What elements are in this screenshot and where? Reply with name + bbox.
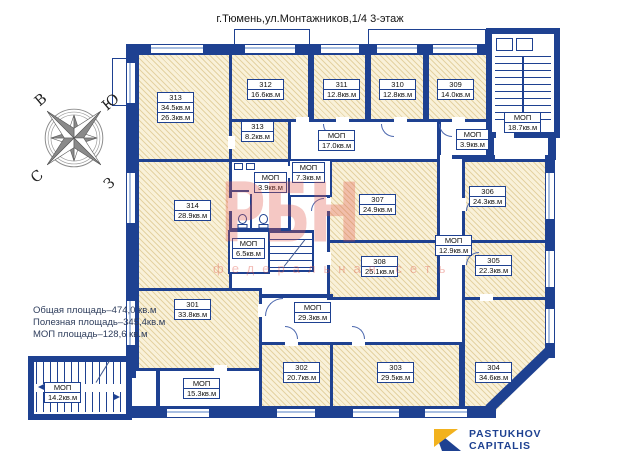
window (545, 250, 555, 288)
company-logo: PASTUKHOV CAPITALIS (432, 428, 541, 452)
stairs-treads (36, 362, 122, 384)
mop-label-3-9-vestibule: МОП3.9кв.м (456, 129, 489, 150)
room-label-307: 30724.9кв.м (359, 194, 396, 215)
window (244, 44, 296, 54)
window (432, 44, 478, 54)
sink (246, 163, 255, 170)
window (352, 408, 400, 418)
stairs-center (268, 230, 314, 272)
door-gap (336, 117, 349, 124)
door-gap (228, 136, 235, 149)
room-label-310: 31012.8кв.м (379, 79, 416, 100)
wc-stall-divider (250, 194, 252, 230)
compass-east-label: В (32, 91, 50, 110)
floor-plan: г.Тюмень,ул.Монтажников,1/4 3-этаж (0, 0, 619, 465)
mop-label-14-2: МОП14.2кв.м (44, 382, 81, 403)
mop-area-line: МОП площадь–128,6 кв.м (33, 329, 165, 341)
door-gap (285, 339, 298, 346)
room-label-312: 31216.6кв.м (247, 79, 284, 100)
mop-label-3-9-wc: МОП3.9кв.м (254, 172, 287, 193)
terrace-outline (368, 29, 486, 45)
door-gap (296, 117, 309, 124)
toilet-icon (237, 214, 248, 234)
window (166, 408, 210, 418)
door-gap (228, 198, 235, 211)
mop-label-18-7: МОП18.7кв.м (504, 112, 541, 133)
window (126, 62, 136, 104)
window (424, 408, 468, 418)
room-label-313: 31334.5кв.м26.3кв.м (157, 92, 194, 123)
mop-label-17-0: МОП17.0кв.м (318, 130, 355, 151)
door-gap (459, 198, 466, 211)
room-label-304: 30434.6кв.м (475, 362, 512, 383)
room-label-313a: 3138.2кв.м (241, 121, 274, 142)
door-gap (452, 117, 465, 124)
useful-area-line: Полезная площадь–345,4кв.м (33, 317, 165, 329)
stairs-arrow-right (114, 394, 120, 400)
door-gap (258, 304, 265, 317)
wall-corridor-north (259, 294, 333, 298)
room-label-303: 30329.5кв.м (377, 362, 414, 383)
door-arc (265, 298, 283, 316)
door-gap (394, 117, 407, 124)
total-area-line: Общая площадь–474,0 кв.м (33, 305, 165, 317)
logo-line1: PASTUKHOV (469, 428, 541, 440)
compass-north-label: С (28, 167, 47, 186)
page-title: г.Тюмень,ул.Монтажников,1/4 3-этаж (140, 13, 480, 25)
window (320, 44, 360, 54)
door-gap (480, 294, 493, 301)
door-gap (324, 252, 331, 265)
window (545, 172, 555, 220)
elevator-shaft (496, 38, 513, 51)
mop-label-6-5: МОП6.5кв.м (232, 238, 265, 259)
door-gap (324, 198, 331, 211)
room-label-302: 30220.7кв.м (283, 362, 320, 383)
compass-west-label: З (101, 175, 118, 192)
logo-icon (432, 428, 462, 452)
toilet-icon (258, 214, 269, 234)
room-314 (136, 159, 232, 291)
window (126, 172, 136, 224)
window (276, 408, 316, 418)
terrace-outline (234, 29, 310, 45)
room-label-314: 31428.9кв.м (174, 200, 211, 221)
door-arc (352, 326, 365, 339)
room-label-309: 30914.0кв.м (437, 79, 474, 100)
mop-label-15-3: МОП15.3кв.м (183, 378, 220, 399)
wc-partition (231, 190, 249, 192)
room-label-306: 30624.3кв.м (469, 186, 506, 207)
compass-rose: В Ю С З (26, 84, 122, 192)
wall-mop15-west (156, 371, 160, 408)
window (545, 308, 555, 344)
logo-line2: CAPITALIS (469, 440, 541, 452)
door-arc (285, 326, 298, 339)
door-arc (381, 124, 394, 137)
room-label-308: 30825.1кв.м (361, 256, 398, 277)
door-gap (352, 339, 365, 346)
door-gap (214, 365, 227, 372)
room-label-301: 30133.8кв.м (174, 299, 211, 320)
sink (234, 163, 243, 170)
mop-label-7-3: МОП7.3кв.м (292, 162, 325, 183)
window (376, 44, 418, 54)
area-summary: Общая площадь–474,0 кв.м Полезная площад… (33, 305, 165, 341)
door-gap (440, 155, 452, 161)
elevator-shaft (516, 38, 533, 51)
room-label-311: 31112.8кв.м (323, 79, 360, 100)
window (150, 44, 204, 54)
mop-label-12-9: МОП12.9кв.м (435, 235, 472, 256)
room-label-305: 30522.3кв.м (475, 255, 512, 276)
mop-label-29-3: МОП29.3кв.м (294, 302, 331, 323)
compass-south-label: Ю (99, 91, 122, 114)
door-arc (311, 198, 324, 211)
